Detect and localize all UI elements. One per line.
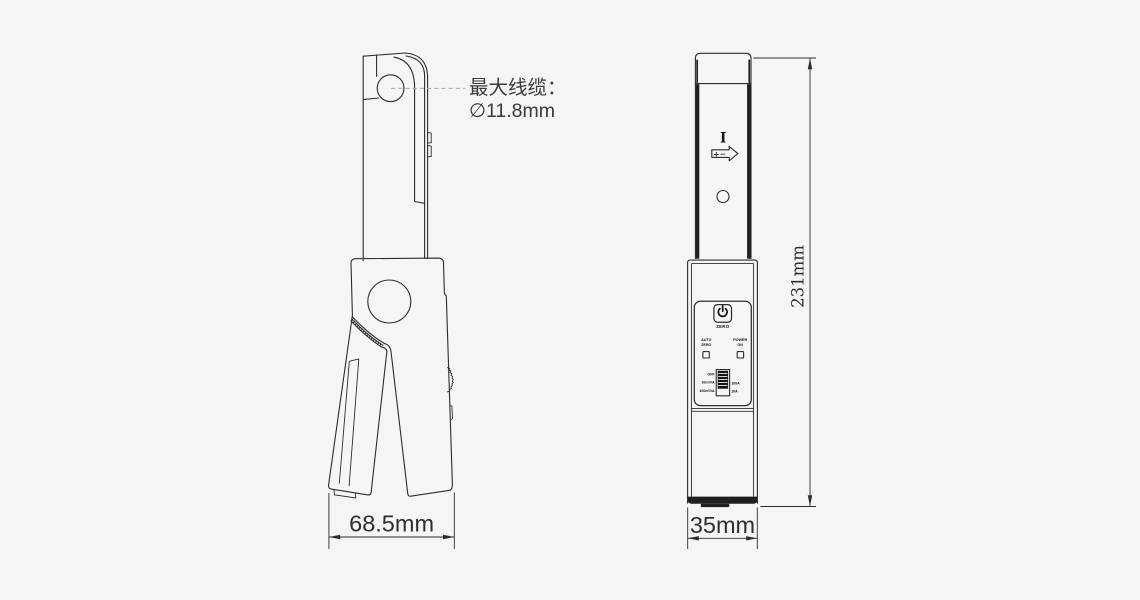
front-view-jaw: I +− <box>695 53 751 258</box>
dimension-front-height: 231mm <box>754 58 817 507</box>
base-foot-tab <box>701 504 730 507</box>
switch-label-100mva: 100mV/A <box>699 389 715 393</box>
front-height-label: 231mm <box>789 245 808 308</box>
leg-panel-detail <box>339 359 359 486</box>
side-view-jaw <box>363 53 431 261</box>
side-width-label: 68.5mm <box>349 511 434 537</box>
clamp-probe-technical-drawing: 最大线缆： ∅11.8mm 68.5mm I +− <box>0 0 1140 600</box>
current-mark: I <box>720 131 726 147</box>
switch-label-100a: 100A <box>731 382 740 386</box>
max-cable-label: 最大线缆： <box>469 77 567 99</box>
jaw-cap-shading-right <box>748 60 750 84</box>
zero-button-label: ZERO <box>716 324 729 329</box>
power-on-led <box>737 352 743 358</box>
side-step-detail <box>451 405 453 420</box>
switch-label-10a: 10A <box>731 389 738 393</box>
auto-zero-label-line1: AUTO <box>701 338 712 342</box>
power-on-label-line2: ON <box>737 343 743 347</box>
dimension-front-width: 35mm <box>688 508 758 550</box>
jaw-edge-shading-left <box>696 84 699 259</box>
switch-label-off: OFF <box>707 373 715 377</box>
front-view: I +− ZERO AUTO ZERO PO <box>688 53 758 507</box>
dimension-drawing-stage: 最大线缆： ∅11.8mm 68.5mm I +− <box>0 0 1140 600</box>
front-width-label: 35mm <box>690 512 755 538</box>
zero-reset-icon <box>718 306 727 317</box>
front-view-body: ZERO AUTO ZERO POWER ON OFF 10mV/A 100mV… <box>688 260 758 507</box>
control-panel: ZERO AUTO ZERO POWER ON OFF 10mV/A 100mV… <box>694 301 751 405</box>
auto-zero-label-line2: ZERO <box>701 343 711 347</box>
polarity-mark: +− <box>713 149 726 158</box>
base-shading <box>688 497 758 504</box>
thumbwheel-detail <box>447 368 453 392</box>
jaw-screw-detail <box>717 191 729 203</box>
side-view <box>329 53 454 498</box>
dimension-side-width: 68.5mm <box>329 493 454 550</box>
max-cable-value: ∅11.8mm <box>469 100 555 122</box>
side-view-body <box>329 258 454 498</box>
auto-zero-led <box>703 352 709 358</box>
thumb-hole <box>368 280 411 323</box>
jaw-edge-shading-right <box>747 84 750 259</box>
power-on-label-line1: POWER <box>733 338 747 342</box>
jaw-cap-shading-left <box>696 60 698 84</box>
body-seam-lines <box>691 408 753 411</box>
max-cable-annotation: 最大线缆： ∅11.8mm <box>391 77 567 122</box>
switch-label-10mva: 10mV/A <box>701 380 715 384</box>
